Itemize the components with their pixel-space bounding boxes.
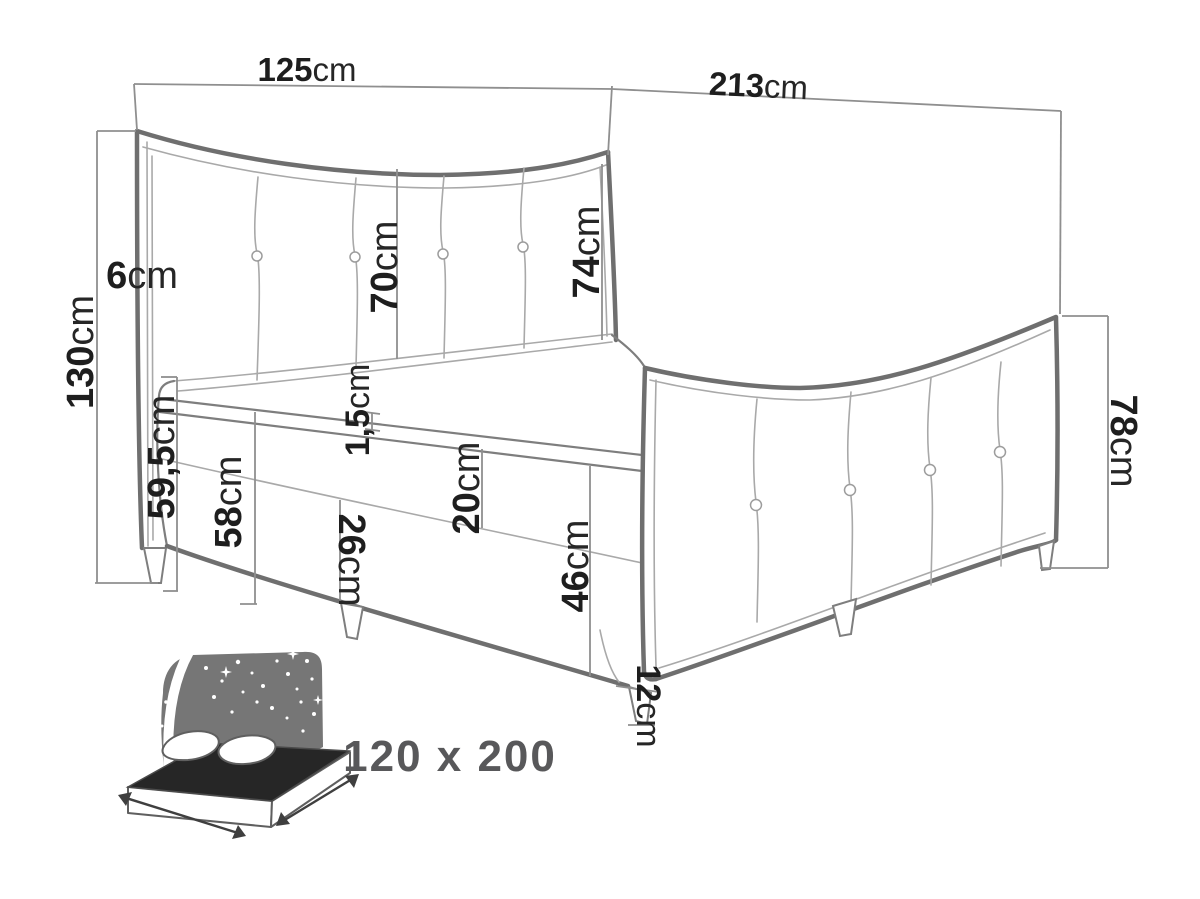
footboard [642, 317, 1057, 679]
dim-label-lower-box-section: 26cm [330, 514, 372, 607]
headboard-leg [144, 548, 166, 583]
footboard-button-icon [925, 465, 936, 476]
bed-dimension-diagram: 125cm 213cm 130cm 6cm 70cm 74cm 1,5cm 59… [0, 0, 1200, 899]
dim-label-headboard-frame: 6cm [106, 255, 178, 297]
footboard-button-icon [995, 447, 1006, 458]
dim-label-upper-box-section: 20cm [446, 442, 488, 535]
headboard-button-icon [438, 249, 448, 259]
dim-label-headboard-panel-mid: 70cm [364, 221, 406, 314]
dim-label-footboard-height: 78cm [1102, 395, 1144, 488]
dim-label-headboard-panel-side: 74cm [566, 206, 608, 299]
dimension-lines [95, 84, 1108, 725]
headboard-button-icon [252, 251, 262, 261]
dim-label-headboard-width: 125cm [257, 51, 356, 88]
bed-size-icon [118, 648, 359, 839]
footboard-button-icon [751, 500, 762, 511]
size-badge-label: 120 x 200 [343, 732, 557, 781]
dim-label-headboard-height: 130cm [60, 295, 102, 409]
dim-label-box-height: 46cm [555, 520, 597, 613]
side-leg [341, 603, 363, 639]
dim-label-leg-height: 12cm [629, 664, 667, 747]
dim-label-floor-to-sleep-surface: 59,5cm [141, 395, 183, 520]
dim-label-topper-seam: 1,5cm [339, 364, 377, 457]
size-badge: 120 x 200 [118, 648, 557, 839]
headboard-button-icon [518, 242, 528, 252]
dim-label-bed-length: 213cm [708, 65, 809, 106]
footboard-leg [833, 599, 856, 636]
footboard-button-icon [845, 485, 856, 496]
footboard-leg [1039, 541, 1054, 570]
dim-label-floor-to-topper-base: 58cm [208, 456, 250, 549]
headboard-button-icon [350, 252, 360, 262]
diagram-canvas: 125cm 213cm 130cm 6cm 70cm 74cm 1,5cm 59… [0, 0, 1200, 899]
